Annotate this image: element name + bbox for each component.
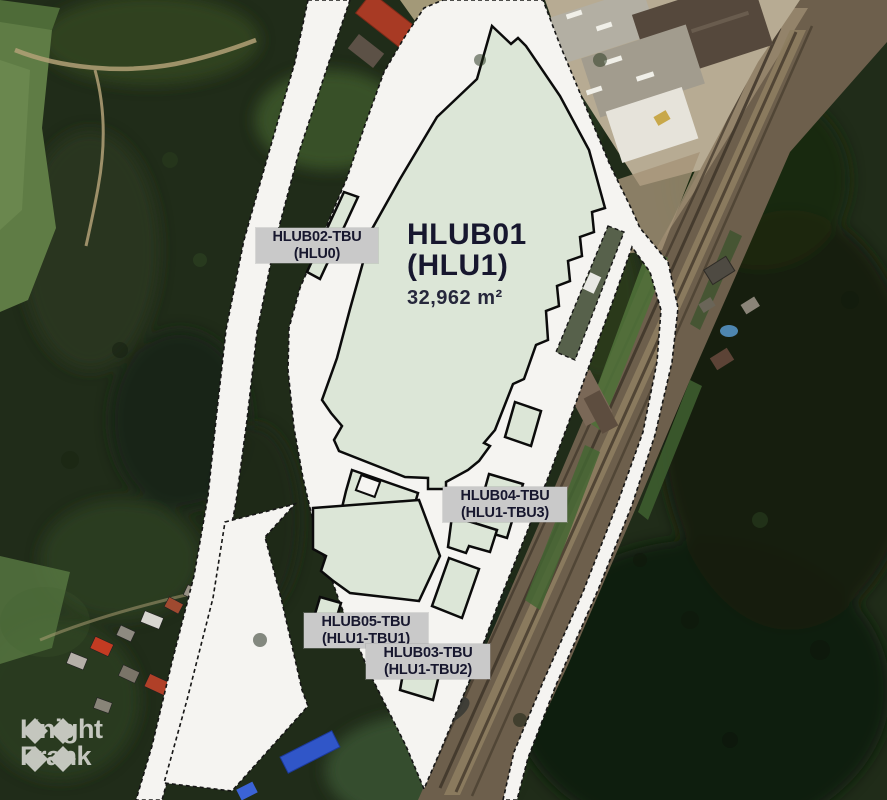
hlub05-name: HLUB05-TBU: [307, 614, 425, 631]
hlub02-code: (HLU0): [259, 246, 375, 263]
hlub02-name: HLUB02-TBU: [259, 229, 375, 246]
hlub01-name: HLUB01: [407, 219, 597, 250]
label-hlub04: HLUB04-TBU (HLU1-TBU3): [443, 487, 567, 522]
label-hlub05: HLUB05-TBU (HLU1-TBU1): [304, 613, 428, 648]
label-hlub03: HLUB03-TBU (HLU1-TBU2): [366, 644, 490, 679]
hlub03-code: (HLU1-TBU2): [369, 662, 487, 679]
hlub04-name: HLUB04-TBU: [446, 488, 564, 505]
hlub01-area: 32,962 m²: [407, 287, 597, 309]
label-hlub02: HLUB02-TBU (HLU0): [256, 228, 378, 263]
knight-frank-watermark: Knight Frank: [20, 716, 102, 770]
hlub04-code: (HLU1-TBU3): [446, 505, 564, 522]
hlub01-code: (HLU1): [407, 250, 597, 281]
knight-frank-diamonds-icon: [20, 716, 78, 774]
satellite-site-map[interactable]: HLUB01 (HLU1) 32,962 m² HLUB02-TBU (HLU0…: [0, 0, 887, 800]
hlub03-name: HLUB03-TBU: [369, 645, 487, 662]
map-canvas: [0, 0, 887, 800]
label-hlub01: HLUB01 (HLU1) 32,962 m²: [407, 219, 597, 309]
